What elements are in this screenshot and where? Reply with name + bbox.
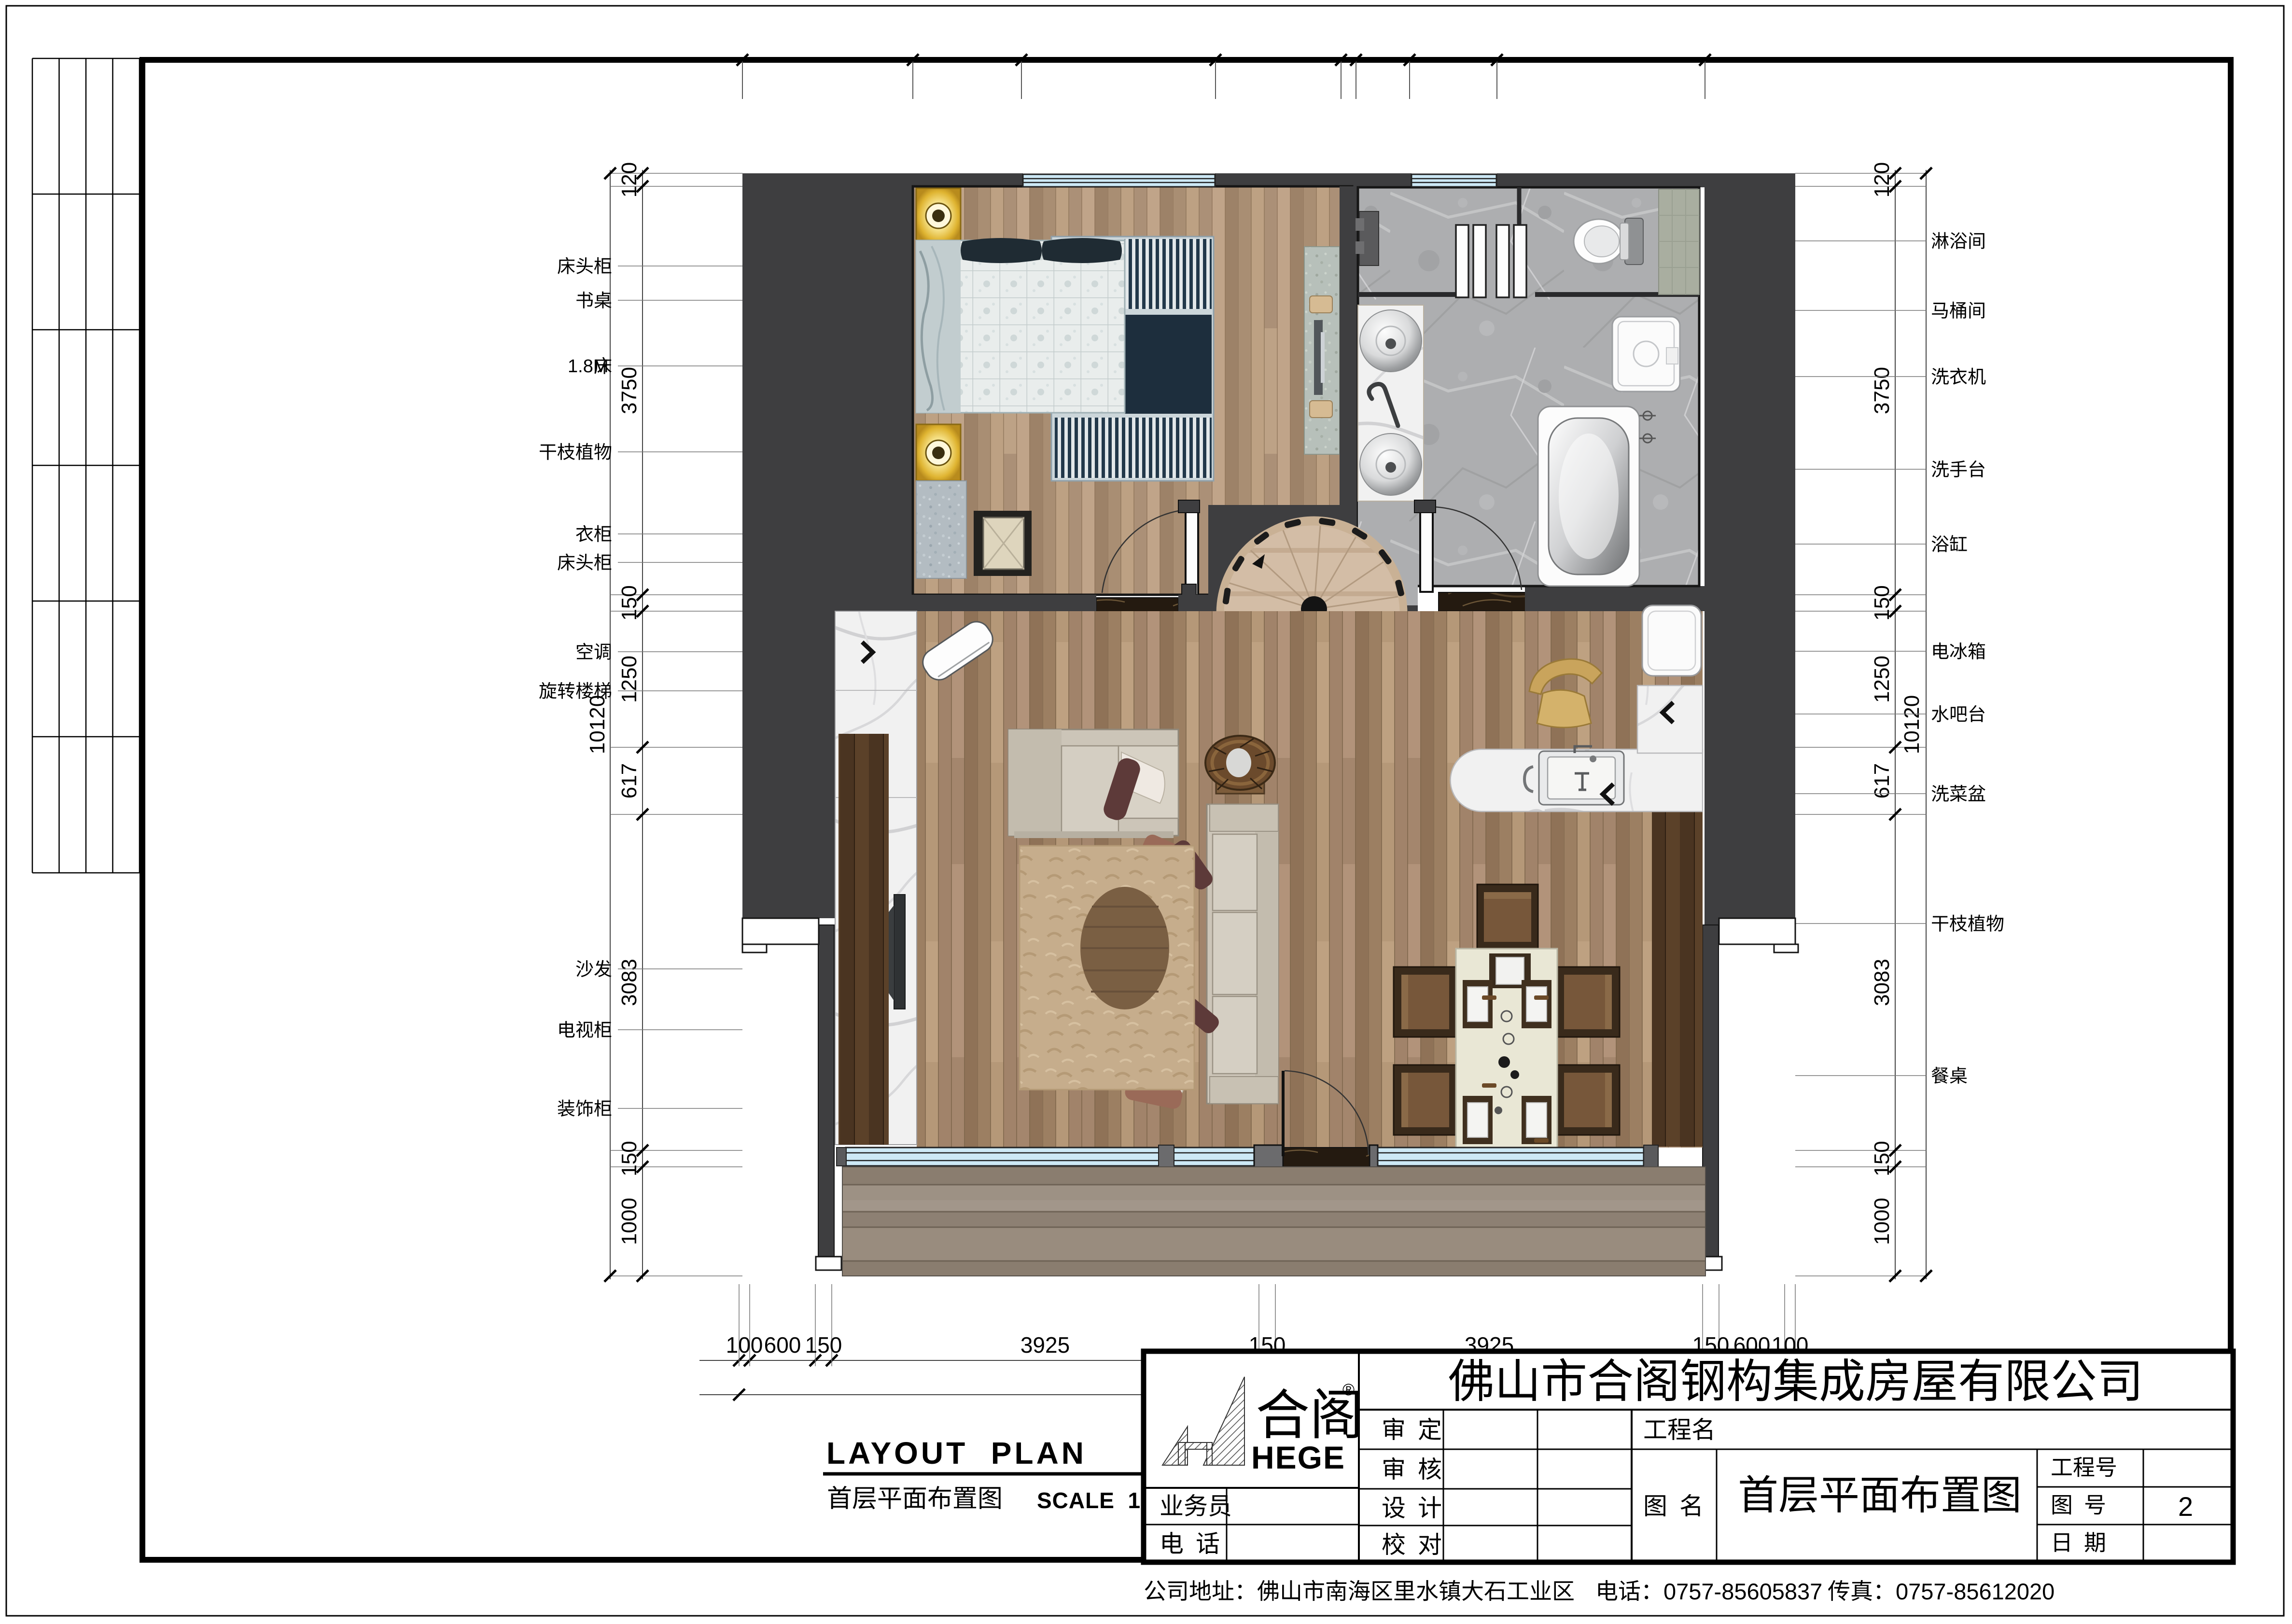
svg-text:1250: 1250 bbox=[1870, 656, 1894, 703]
svg-text:0757-85612020: 0757-85612020 bbox=[1896, 1579, 2054, 1604]
svg-text:100: 100 bbox=[726, 1332, 763, 1358]
svg-text:LAYOUT PLAN: LAYOUT PLAN bbox=[826, 1436, 1087, 1470]
svg-text:3925: 3925 bbox=[1020, 1332, 1070, 1358]
svg-text:617: 617 bbox=[617, 763, 641, 798]
svg-text:120: 120 bbox=[1870, 162, 1894, 197]
svg-text:10120: 10120 bbox=[1900, 695, 1924, 754]
svg-text:3083: 3083 bbox=[617, 959, 641, 1006]
svg-text:10120: 10120 bbox=[586, 695, 609, 754]
svg-text:®: ® bbox=[1342, 1381, 1355, 1399]
svg-text:150: 150 bbox=[1870, 585, 1894, 620]
svg-text:150: 150 bbox=[1870, 1141, 1894, 1176]
svg-text:1250: 1250 bbox=[617, 656, 641, 703]
svg-text:120: 120 bbox=[617, 162, 641, 197]
svg-text:617: 617 bbox=[1870, 763, 1894, 798]
svg-text:HEGE: HEGE bbox=[1251, 1440, 1345, 1475]
svg-text:600: 600 bbox=[764, 1332, 801, 1358]
svg-text:1000: 1000 bbox=[1870, 1198, 1894, 1245]
svg-text:150: 150 bbox=[805, 1332, 842, 1358]
svg-text:1000: 1000 bbox=[617, 1198, 641, 1245]
svg-text:3750: 3750 bbox=[617, 367, 641, 414]
svg-text:3083: 3083 bbox=[1870, 959, 1894, 1006]
svg-text:0757-85605837: 0757-85605837 bbox=[1663, 1579, 1822, 1604]
svg-text:3750: 3750 bbox=[1870, 367, 1894, 414]
svg-text:1.8M: 1.8M bbox=[568, 356, 608, 377]
svg-text:150: 150 bbox=[617, 1141, 641, 1176]
svg-text:2: 2 bbox=[2178, 1491, 2193, 1522]
svg-text:150: 150 bbox=[617, 585, 641, 620]
